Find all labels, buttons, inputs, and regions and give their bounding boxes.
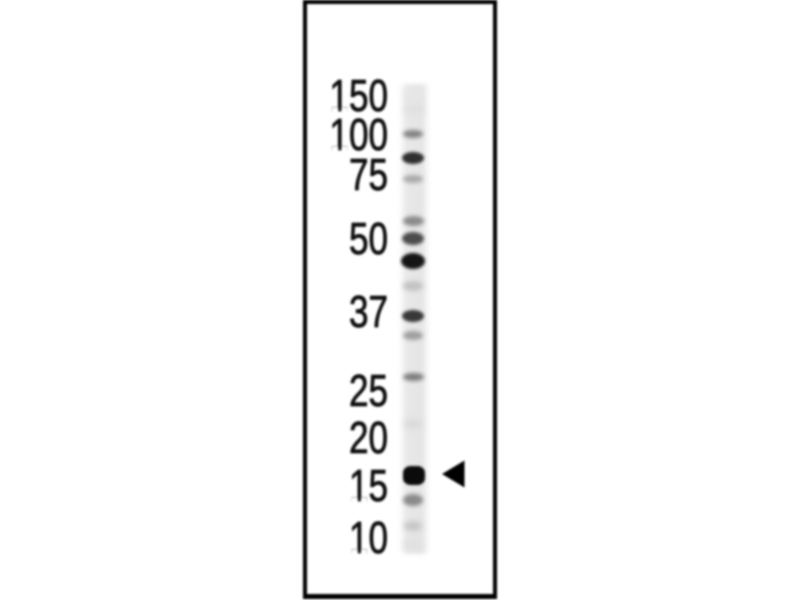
- svg-text:50: 50: [349, 213, 388, 264]
- svg-text:10: 10: [349, 512, 388, 563]
- svg-text:15: 15: [349, 460, 388, 511]
- svg-text:25: 25: [349, 365, 388, 416]
- svg-text:75: 75: [349, 149, 388, 200]
- svg-text:20: 20: [349, 412, 388, 463]
- svg-text:37: 37: [349, 286, 388, 337]
